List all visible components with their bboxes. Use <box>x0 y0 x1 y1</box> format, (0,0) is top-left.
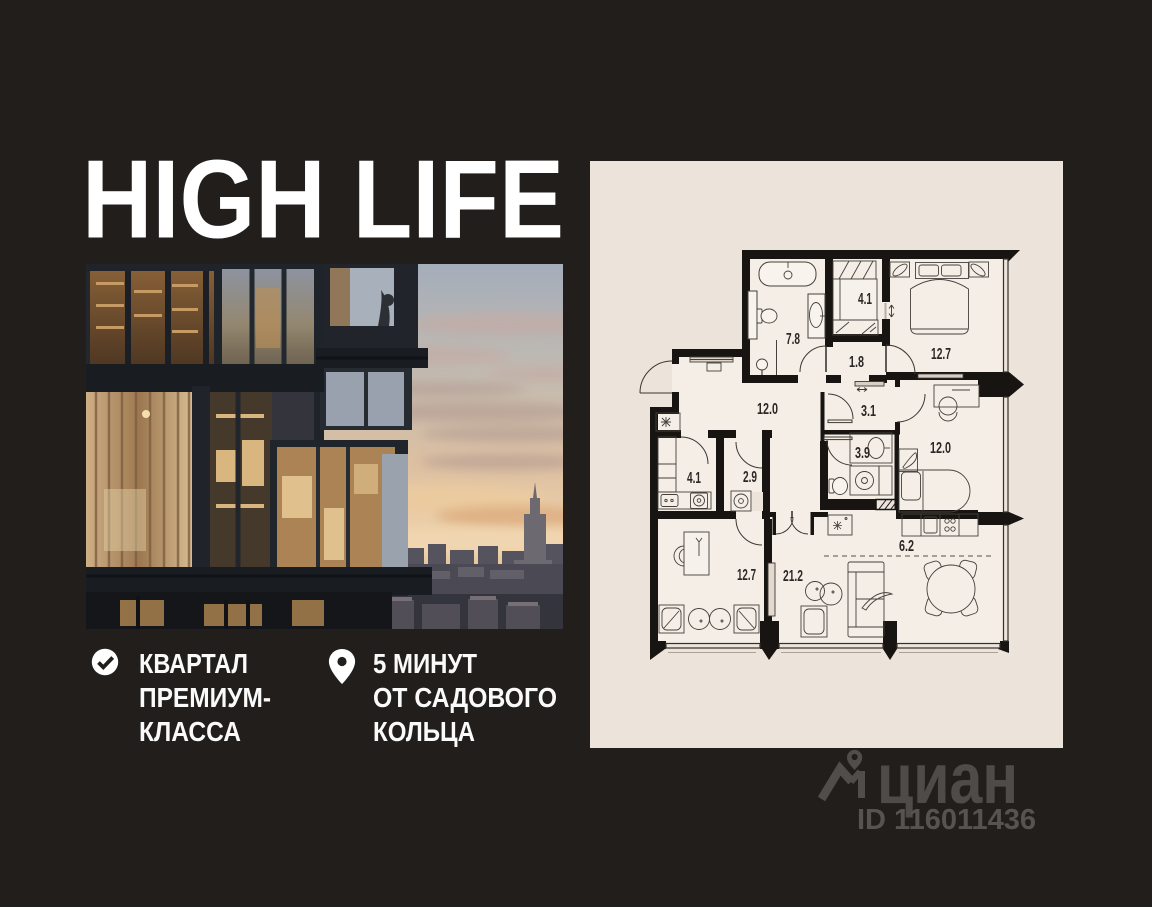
svg-text:3.1: 3.1 <box>861 403 876 420</box>
svg-text:ID 116011436: ID 116011436 <box>857 804 1036 836</box>
svg-text:КВАРТАЛ: КВАРТАЛ <box>139 648 248 679</box>
svg-text:12.0: 12.0 <box>757 401 778 418</box>
svg-text:ОТ САДОВОГО: ОТ САДОВОГО <box>373 682 557 713</box>
svg-text:7.8: 7.8 <box>786 331 800 348</box>
svg-text:21.2: 21.2 <box>783 568 803 585</box>
svg-text:12.7: 12.7 <box>737 567 756 584</box>
svg-text:КЛАССА: КЛАССА <box>139 716 241 747</box>
svg-text:12.0: 12.0 <box>930 440 951 457</box>
svg-text:ПРЕМИУМ-: ПРЕМИУМ- <box>139 682 271 713</box>
svg-text:2.9: 2.9 <box>743 469 757 486</box>
svg-text:КОЛЬЦА: КОЛЬЦА <box>373 716 475 747</box>
svg-text:12.7: 12.7 <box>931 346 951 363</box>
svg-text:4.1: 4.1 <box>687 470 701 487</box>
svg-text:HIGH LIFE: HIGH LIFE <box>82 138 564 261</box>
svg-text:4.1: 4.1 <box>858 291 872 308</box>
svg-text:6.2: 6.2 <box>899 538 914 555</box>
svg-text:5 МИНУТ: 5 МИНУТ <box>373 648 477 679</box>
svg-text:1.8: 1.8 <box>849 354 864 371</box>
svg-text:3.9: 3.9 <box>855 445 870 462</box>
